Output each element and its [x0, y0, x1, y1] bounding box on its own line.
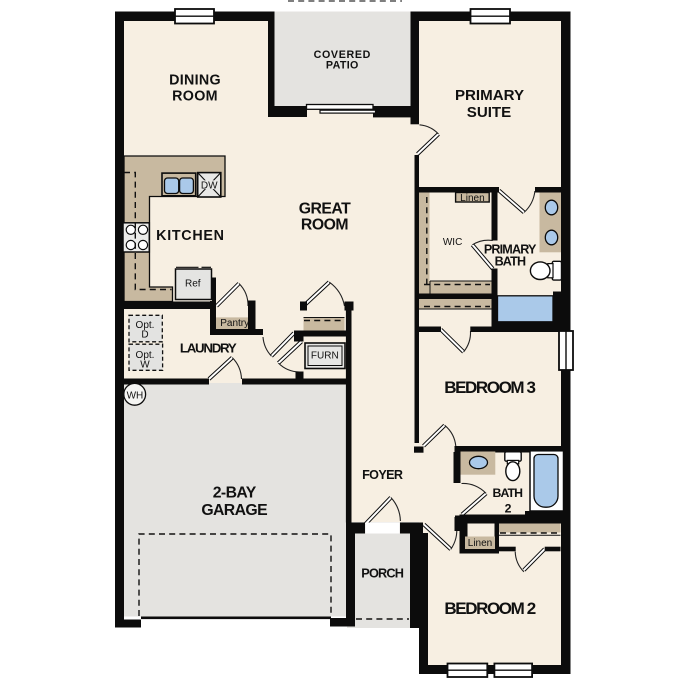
svg-text:2: 2 [505, 501, 512, 515]
svg-text:W: W [140, 359, 150, 370]
svg-text:BEDROOM 3: BEDROOM 3 [444, 378, 535, 397]
svg-text:Linen: Linen [460, 193, 484, 204]
svg-text:BATH: BATH [495, 254, 526, 268]
svg-text:PATIO: PATIO [326, 59, 359, 71]
svg-text:KITCHEN: KITCHEN [156, 228, 224, 244]
svg-text:ROOM: ROOM [301, 217, 348, 234]
svg-text:PORCH: PORCH [361, 565, 403, 580]
svg-text:WIC: WIC [443, 237, 462, 248]
svg-text:Pantry: Pantry [220, 318, 249, 329]
svg-text:BATH: BATH [492, 486, 523, 500]
svg-text:D: D [141, 330, 148, 341]
svg-text:WH: WH [127, 390, 144, 401]
svg-text:GARAGE: GARAGE [201, 502, 267, 519]
svg-text:PRIMARY: PRIMARY [455, 87, 524, 104]
svg-text:BEDROOM 2: BEDROOM 2 [444, 599, 535, 618]
svg-text:DINING: DINING [169, 72, 221, 88]
svg-text:Linen: Linen [468, 538, 492, 549]
svg-text:2-BAY: 2-BAY [213, 485, 257, 502]
svg-text:LAUNDRY: LAUNDRY [180, 340, 237, 355]
svg-text:FOYER: FOYER [362, 468, 403, 482]
svg-text:GREAT: GREAT [299, 201, 351, 218]
svg-text:SUITE: SUITE [467, 104, 511, 121]
svg-text:DW: DW [201, 180, 218, 191]
svg-text:Ref: Ref [185, 279, 201, 290]
svg-text:FURN: FURN [311, 351, 339, 362]
svg-text:ROOM: ROOM [172, 88, 218, 104]
